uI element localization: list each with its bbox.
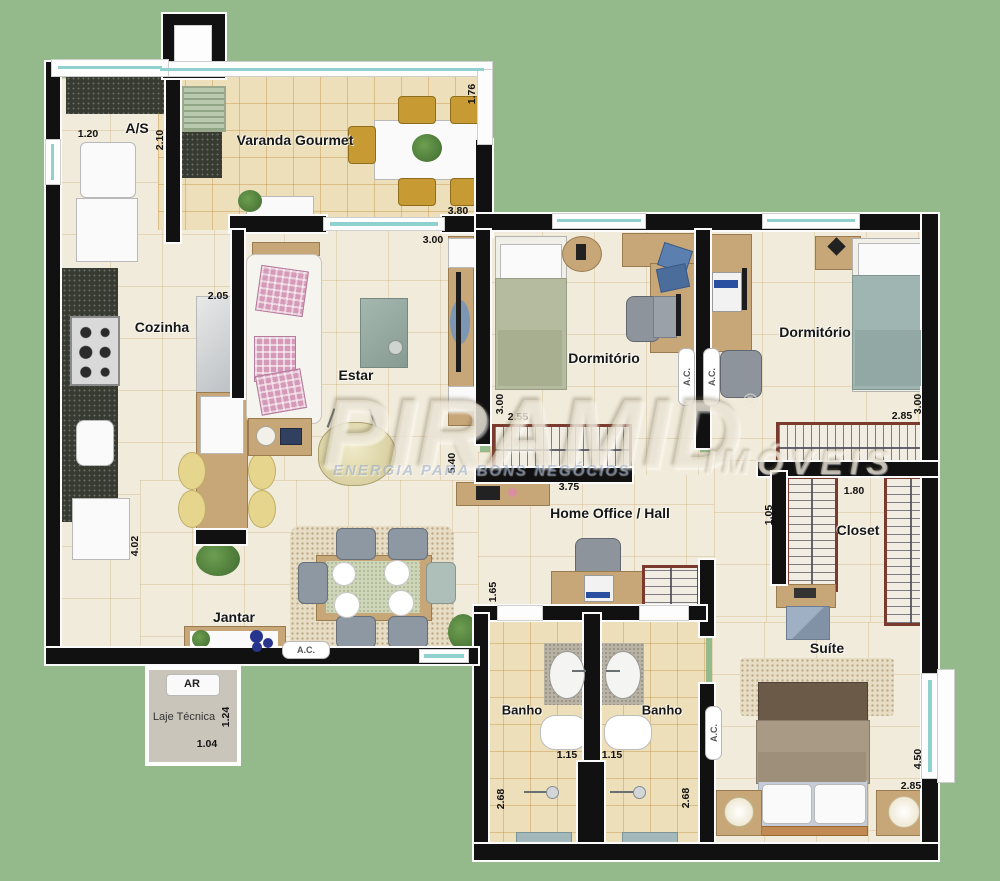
hall-sideboard [456,482,550,506]
banho1-shower-head [546,786,559,799]
blue-vase [252,642,262,652]
ac-label: A.C. [709,724,719,742]
banho2-shower-head [633,786,646,799]
room-label-dorm2: Dormitório [779,324,851,340]
dim-estar-h: 5.40 [446,453,458,473]
barbecue-counter [180,132,222,178]
banho2-sink [605,651,641,699]
dorm1-keyboard [653,296,677,338]
suite-pillow [762,784,812,824]
dim-closet-w: 1.80 [844,485,864,497]
fridge [72,498,130,560]
wall-dorm-top [476,214,938,230]
banho2-faucet [606,670,620,672]
as-top-glass [58,66,162,69]
closet-wardrobe-left [786,476,838,592]
room-label-cozinha: Cozinha [135,319,189,335]
dim-banho2-h: 2.68 [680,788,692,808]
island-top [200,396,244,454]
blue-vase [263,638,273,648]
dim-banho1-h: 2.68 [495,789,507,809]
banho2-shower-arm [610,791,634,793]
label-ar: AR [184,678,200,690]
wall-island-base [196,530,246,544]
estar-slider-glass [330,222,438,226]
dim-suite-h: 4.50 [912,749,924,769]
dim-dorm2-h: 3.00 [912,394,924,414]
dorm2-blanket-fold [855,330,921,386]
dim-banho2-w: 1.15 [602,749,622,761]
suite-lamp-left [724,797,754,827]
dorm1-monitor [676,294,681,336]
dim-varanda-w: 3.80 [448,205,468,217]
hall-computer-stripe [586,592,610,598]
room-label-closet: Closet [837,522,880,538]
book [280,428,302,445]
kitchen-sink [76,420,114,466]
dim-as-w: 1.20 [78,128,98,140]
floor-plan: A.C. A.C. A.C. A.C. A/S Varanda Gourmet … [0,0,1000,881]
dining-chair [336,528,376,560]
plate [332,562,356,586]
grill-vent [182,86,226,132]
room-label-banho2: Banho [642,703,682,718]
room-label-varanda: Varanda Gourmet [237,132,354,148]
banho2-door [640,606,688,620]
jantar-plant [196,542,240,576]
dorm2-laptop-stripe [714,280,738,288]
hall-vase [508,488,517,497]
wall-banho-divider [584,614,600,764]
suite-pillow [814,784,866,824]
banho1-toilet [540,715,588,750]
dorm2-monitor [742,268,747,310]
dim-estar-w: 3.00 [423,234,443,246]
kitchen-counter [62,268,118,522]
room-label-as: A/S [125,120,148,136]
stool [248,452,276,490]
laundry-tank [80,142,136,198]
as-counter [66,76,168,114]
dim-varanda-h: 1.76 [466,84,478,104]
varanda-rail-glass [160,68,484,71]
ac-point-suite: A.C. [705,706,722,760]
dining-chair [298,562,328,604]
dorm2-office-chair [720,350,762,398]
wall-shower-divider [578,762,604,848]
dim-closet-h: 1.05 [763,505,775,525]
left-wall-glass [51,144,54,180]
jantar-sideboard-plant [192,630,210,648]
plate [384,560,410,586]
ac-point-dorm2: A.C. [703,348,720,406]
tv-screen [456,272,461,372]
varanda-right-frame [478,70,492,144]
dim-cozinha-h: 4.02 [129,536,141,556]
banho1-sink [549,651,585,699]
suite-bed-base [758,826,868,836]
dim-as-h: 2.10 [154,130,166,150]
shaft-interior [175,26,211,66]
wall-dorm1-bottom [476,468,632,482]
dim-cozinha-w: 2.05 [208,290,228,302]
dim-laje-h: 1.24 [220,707,232,727]
plate [334,592,360,618]
rug-object [388,340,403,355]
dorm1-blanket-fold [498,330,562,386]
wall-dorm-divider [696,230,710,448]
dorm1-pillow [500,244,562,280]
dorm2-pillow [858,243,922,277]
dorm1-chair-back [576,244,586,260]
sofa-pillow [255,368,307,415]
banho1-faucet [572,670,586,672]
dim-dorm1-h: 3.00 [494,394,506,414]
ac-label: A.C. [682,368,692,386]
wall-kitchen-estar [232,230,244,398]
ac-label: A.C. [297,645,315,655]
wall-closet-left [772,472,786,584]
room-label-hall: Home Office / Hall [550,505,670,521]
table-plant [412,134,442,162]
room-label-suite: Suíte [810,640,844,656]
suite-lamp-right [888,796,920,828]
washing-machine [76,198,138,262]
varanda-chair [398,96,436,124]
wall-estar-dorm1 [476,230,490,444]
wall-suite-corridor-a [700,560,714,636]
stove [70,316,120,386]
stool [178,452,206,490]
suite-window-glass [928,680,932,772]
ac-label: A.C. [707,368,717,386]
hall-phone [476,486,500,500]
dining-chair [388,528,428,560]
table-lamp [256,426,276,446]
jantar-window-glass [424,654,464,658]
suite-headboard [758,682,868,724]
wall-bottom-banhos [474,844,938,860]
dresser-object [794,588,816,598]
stool [248,490,276,528]
dim-suite-w: 2.85 [901,780,921,792]
dim-banho1-w: 1.15 [557,749,577,761]
wall-jantar-bottom [46,648,478,664]
dorm2-window-glass [767,219,855,222]
dining-chair [388,616,428,648]
estar-rug [360,298,408,368]
dim-hall-h: 1.65 [487,582,499,602]
dorm2-laptop [712,272,742,312]
ac-point-jantar: A.C. [282,641,330,659]
banho1-shower-arm [524,791,548,793]
dining-chair [336,616,376,648]
dim-hall-w: 3.75 [559,481,579,493]
dim-dorm1-w: 2.55 [508,411,528,423]
varanda-chair [398,178,436,206]
suite-bed-fold [758,752,866,782]
room-label-dorm1: Dormitório [568,350,640,366]
sofa-pillow [255,265,309,317]
room-label-laje: Laje Técnica [153,711,215,723]
plate [388,590,414,616]
banho1-door [498,606,542,620]
dorm1-window-glass [557,219,641,222]
dim-dorm2-w: 2.85 [892,410,912,422]
room-label-jantar: Jantar [213,609,255,625]
sideboard-plant [238,190,262,212]
stool [178,490,206,528]
banho2-toilet [604,715,652,750]
suite-window-sill [938,670,954,782]
ac-point-dorm1: A.C. [678,348,695,406]
wall-as-divider [166,62,180,242]
room-label-banho1: Banho [502,703,542,718]
wall-varanda-estar-a [230,216,326,232]
room-label-estar: Estar [338,367,373,383]
dining-chair [426,562,456,604]
dim-laje-w: 1.04 [197,738,217,750]
closet-ottoman [786,606,830,640]
